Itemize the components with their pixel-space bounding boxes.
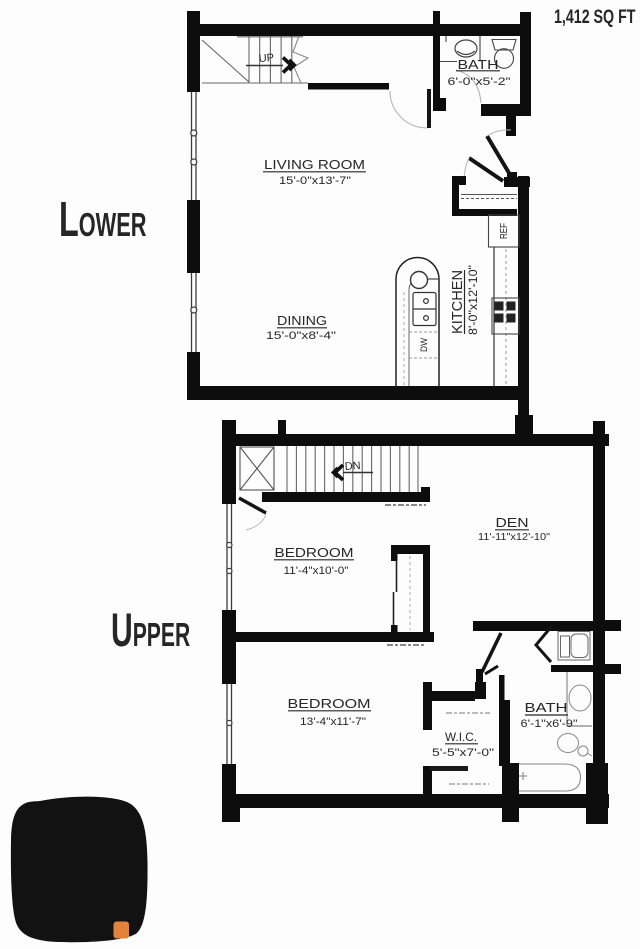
- svg-text:DINING: DINING: [277, 313, 327, 328]
- svg-text:UP: UP: [258, 52, 274, 65]
- svg-text:BEDROOM: BEDROOM: [275, 545, 354, 560]
- svg-text:UPPER: UPPER: [111, 604, 190, 656]
- svg-text:BATH: BATH: [458, 57, 499, 72]
- svg-text:6'-0"x5'-2": 6'-0"x5'-2": [448, 76, 511, 88]
- svg-text:8'-0"x12'-10": 8'-0"x12'-10": [466, 265, 480, 335]
- svg-text:6'-1"x6'-9": 6'-1"x6'-9": [521, 718, 578, 730]
- svg-text:W.I.C.: W.I.C.: [445, 730, 477, 744]
- svg-text:BATH: BATH: [525, 700, 568, 715]
- svg-text:LOWER: LOWER: [59, 191, 146, 246]
- svg-text:1,412 SQ FT: 1,412 SQ FT: [554, 6, 636, 28]
- svg-text:DN: DN: [344, 460, 361, 473]
- svg-text:15'-0"x13'-7": 15'-0"x13'-7": [279, 175, 351, 187]
- svg-text:5'-5"x7'-0": 5'-5"x7'-0": [432, 747, 494, 759]
- svg-text:15'-0"x8'-4": 15'-0"x8'-4": [266, 330, 336, 342]
- svg-text:13'-4"x11'-7": 13'-4"x11'-7": [300, 716, 366, 728]
- svg-text:DW: DW: [419, 338, 429, 352]
- svg-text:DEN: DEN: [496, 515, 529, 530]
- svg-text:REF: REF: [499, 223, 510, 239]
- svg-text:KITCHEN: KITCHEN: [449, 270, 466, 334]
- svg-text:11'-4"x10'-0": 11'-4"x10'-0": [284, 565, 349, 577]
- svg-text:BEDROOM: BEDROOM: [288, 696, 371, 711]
- svg-text:LIVING ROOM: LIVING ROOM: [264, 157, 365, 172]
- svg-text:11'-11"x12'-10": 11'-11"x12'-10": [478, 531, 550, 543]
